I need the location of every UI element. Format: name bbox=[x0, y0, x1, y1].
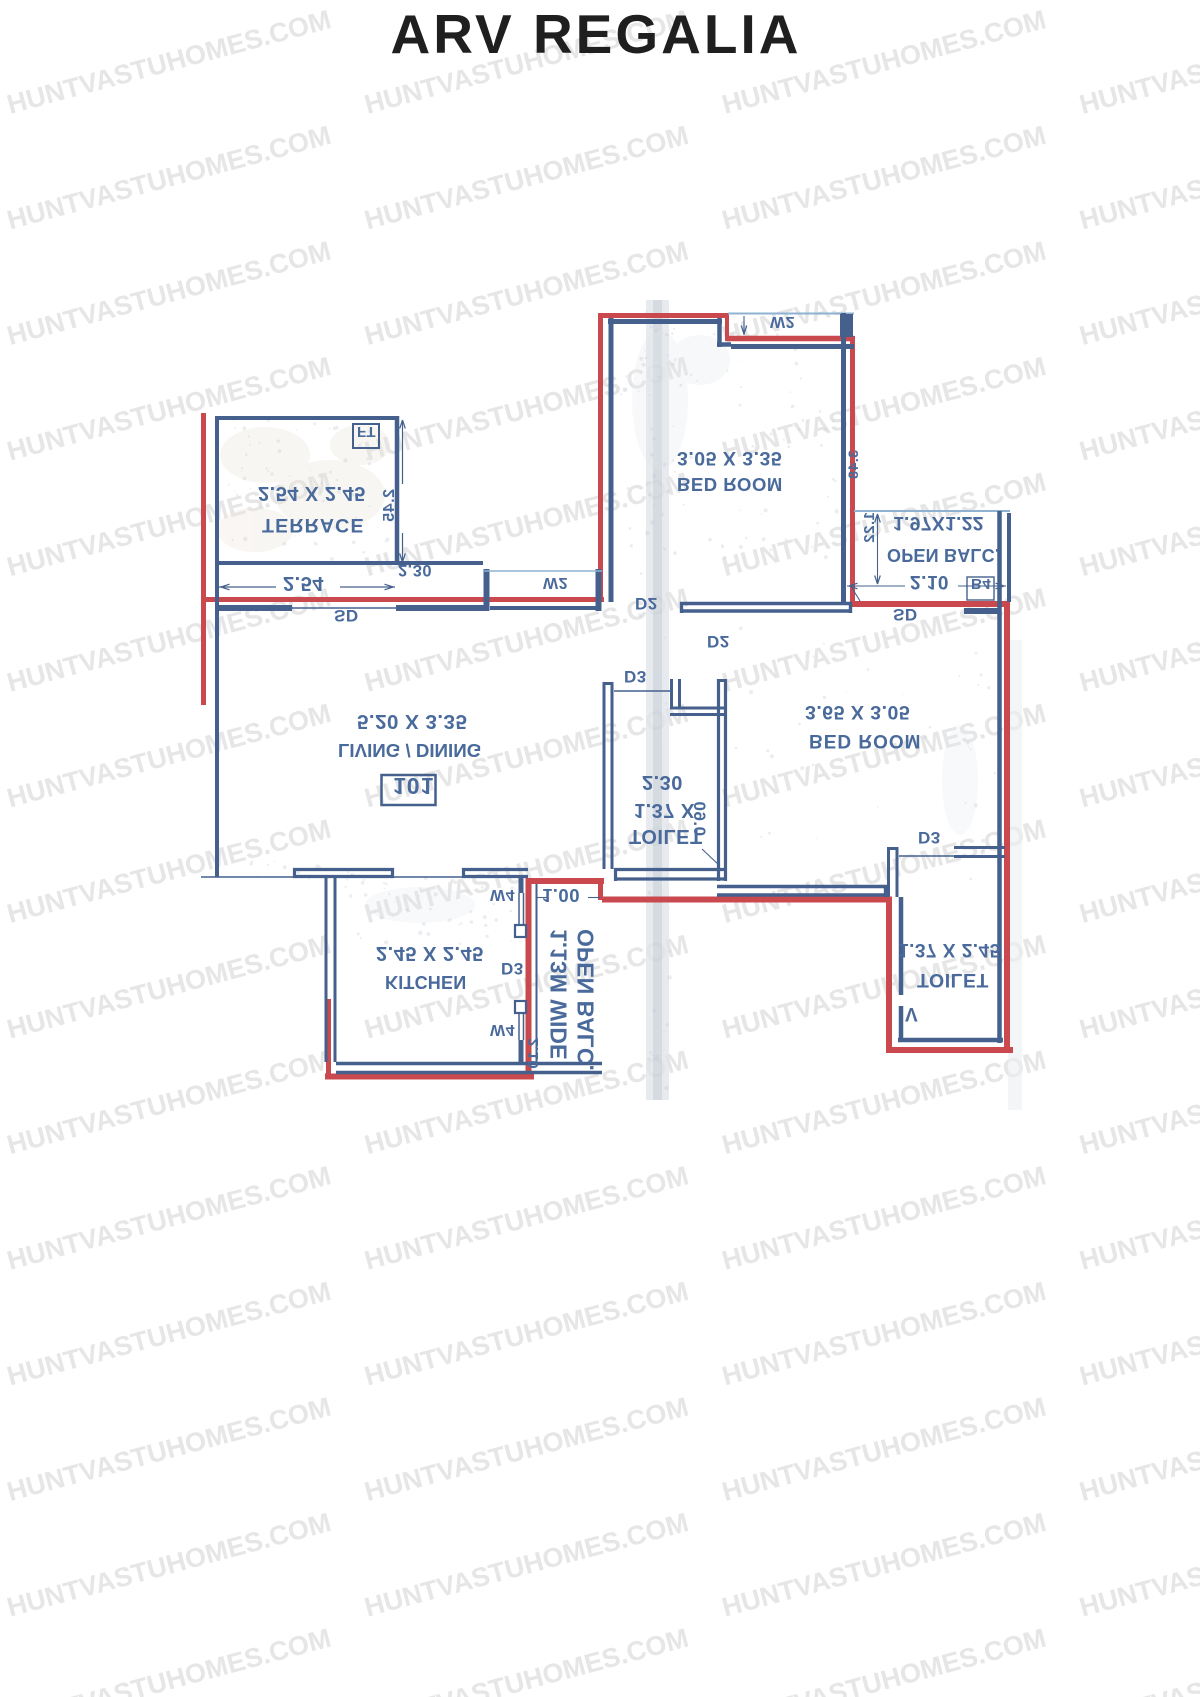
svg-text:2.10: 2.10 bbox=[525, 1038, 542, 1069]
svg-text:HUNTVASTUHOMES.COM: HUNTVASTUHOMES.COM bbox=[4, 1276, 334, 1391]
svg-text:V: V bbox=[905, 1003, 918, 1024]
svg-text:D2: D2 bbox=[707, 632, 730, 651]
svg-text:FT: FT bbox=[357, 423, 376, 440]
svg-text:HUNTVASTUHOMES.COM: HUNTVASTUHOMES.COM bbox=[1076, 814, 1200, 929]
svg-text:1.37 X 2.45: 1.37 X 2.45 bbox=[898, 939, 1001, 960]
svg-text:HUNTVASTUHOMES.COM: HUNTVASTUHOMES.COM bbox=[719, 1507, 1049, 1622]
svg-text:W2: W2 bbox=[770, 313, 795, 330]
svg-text:HUNTVASTUHOMES.COM: HUNTVASTUHOMES.COM bbox=[361, 1276, 691, 1391]
svg-text:1.37 X: 1.37 X bbox=[634, 799, 695, 821]
svg-text:D3: D3 bbox=[624, 667, 647, 686]
svg-text:HUNTVASTUHOMES.COM: HUNTVASTUHOMES.COM bbox=[361, 1623, 691, 1697]
svg-text:HUNTVASTUHOMES.COM: HUNTVASTUHOMES.COM bbox=[361, 1392, 691, 1507]
svg-text:HUNTVASTUHOMES.COM: HUNTVASTUHOMES.COM bbox=[1076, 1160, 1200, 1275]
svg-text:HUNTVASTUHOMES.COM: HUNTVASTUHOMES.COM bbox=[1076, 236, 1200, 351]
svg-text:HUNTVASTUHOMES.COM: HUNTVASTUHOMES.COM bbox=[719, 120, 1049, 235]
svg-text:HUNTVASTUHOMES.COM: HUNTVASTUHOMES.COM bbox=[4, 1507, 334, 1622]
svg-text:OPEN BALC.: OPEN BALC. bbox=[573, 929, 599, 1071]
svg-text:BED ROOM: BED ROOM bbox=[809, 730, 922, 751]
svg-text:BED ROOM: BED ROOM bbox=[677, 474, 783, 495]
svg-text:HUNTVASTUHOMES.COM: HUNTVASTUHOMES.COM bbox=[4, 236, 334, 351]
svg-text:HUNTVASTUHOMES.COM: HUNTVASTUHOMES.COM bbox=[1076, 1045, 1200, 1160]
svg-text:3.65 X 3.05: 3.65 X 3.05 bbox=[805, 701, 910, 723]
svg-text:HUNTVASTUHOMES.COM: HUNTVASTUHOMES.COM bbox=[1076, 929, 1200, 1044]
svg-text:W4: W4 bbox=[490, 1021, 515, 1038]
svg-text:HUNTVASTUHOMES.COM: HUNTVASTUHOMES.COM bbox=[1076, 698, 1200, 813]
svg-text:1.22: 1.22 bbox=[861, 512, 878, 543]
svg-text:HUNTVASTUHOMES.COM: HUNTVASTUHOMES.COM bbox=[4, 1623, 334, 1697]
svg-text:SD: SD bbox=[334, 606, 359, 625]
svg-text:HUNTVASTUHOMES.COM: HUNTVASTUHOMES.COM bbox=[4, 814, 334, 929]
svg-text:2.10: 2.10 bbox=[910, 571, 949, 592]
svg-text:1.13M WIDE: 1.13M WIDE bbox=[546, 929, 572, 1059]
svg-text:HUNTVASTUHOMES.COM: HUNTVASTUHOMES.COM bbox=[1076, 582, 1200, 697]
svg-text:D2: D2 bbox=[635, 594, 658, 613]
svg-text:HUNTVASTUHOMES.COM: HUNTVASTUHOMES.COM bbox=[361, 1160, 691, 1275]
svg-text:TOILET: TOILET bbox=[629, 825, 703, 847]
svg-text:W4: W4 bbox=[490, 886, 515, 903]
svg-text:HUNTVASTUHOMES.COM: HUNTVASTUHOMES.COM bbox=[4, 698, 334, 813]
svg-text:TOILET: TOILET bbox=[917, 969, 989, 991]
svg-text:HUNTVASTUHOMES.COM: HUNTVASTUHOMES.COM bbox=[719, 1045, 1049, 1160]
svg-text:HUNTVASTUHOMES.COM: HUNTVASTUHOMES.COM bbox=[719, 1623, 1049, 1697]
svg-text:HUNTVASTUHOMES.COM: HUNTVASTUHOMES.COM bbox=[4, 4, 334, 119]
svg-text:HUNTVASTUHOMES.COM: HUNTVASTUHOMES.COM bbox=[4, 929, 334, 1044]
svg-text:SD: SD bbox=[893, 605, 918, 624]
svg-text:HUNTVASTUHOMES.COM: HUNTVASTUHOMES.COM bbox=[1076, 120, 1200, 235]
svg-text:2.54 X 2.45: 2.54 X 2.45 bbox=[258, 482, 366, 504]
svg-text:ARV REGALIA: ARV REGALIA bbox=[391, 3, 802, 65]
svg-text:HUNTVASTUHOMES.COM: HUNTVASTUHOMES.COM bbox=[719, 1160, 1049, 1275]
svg-text:5.20 X 3.35: 5.20 X 3.35 bbox=[357, 710, 467, 733]
svg-text:2.30: 2.30 bbox=[642, 771, 683, 793]
svg-text:1.97X1.22: 1.97X1.22 bbox=[893, 512, 984, 534]
svg-text:D3: D3 bbox=[918, 828, 941, 847]
svg-text:TERRACE: TERRACE bbox=[262, 514, 365, 536]
svg-text:101: 101 bbox=[393, 773, 434, 799]
svg-text:OPEN BALC.: OPEN BALC. bbox=[887, 545, 1000, 565]
svg-text:2.54: 2.54 bbox=[283, 572, 324, 594]
svg-text:HUNTVASTUHOMES.COM: HUNTVASTUHOMES.COM bbox=[4, 120, 334, 235]
svg-text:KITCHEN: KITCHEN bbox=[385, 972, 466, 992]
svg-text:HUNTVASTUHOMES.COM: HUNTVASTUHOMES.COM bbox=[1076, 1507, 1200, 1622]
svg-text:HUNTVASTUHOMES.COM: HUNTVASTUHOMES.COM bbox=[1076, 351, 1200, 466]
svg-text:2.45: 2.45 bbox=[381, 489, 398, 522]
svg-text:W2: W2 bbox=[543, 574, 568, 591]
svg-text:HUNTVASTUHOMES.COM: HUNTVASTUHOMES.COM bbox=[1076, 4, 1200, 119]
svg-text:D3: D3 bbox=[501, 959, 524, 978]
svg-text:HUNTVASTUHOMES.COM: HUNTVASTUHOMES.COM bbox=[719, 1276, 1049, 1391]
svg-text:B4: B4 bbox=[971, 575, 991, 592]
svg-text:3.48: 3.48 bbox=[845, 450, 861, 479]
svg-text:HUNTVASTUHOMES.COM: HUNTVASTUHOMES.COM bbox=[1076, 1623, 1200, 1697]
svg-text:HUNTVASTUHOMES.COM: HUNTVASTUHOMES.COM bbox=[1076, 467, 1200, 582]
svg-text:HUNTVASTUHOMES.COM: HUNTVASTUHOMES.COM bbox=[4, 1045, 334, 1160]
svg-text:HUNTVASTUHOMES.COM: HUNTVASTUHOMES.COM bbox=[361, 1507, 691, 1622]
svg-text:HUNTVASTUHOMES.COM: HUNTVASTUHOMES.COM bbox=[361, 120, 691, 235]
svg-text:3.05 X 3.35: 3.05 X 3.35 bbox=[677, 447, 782, 469]
svg-text:HUNTVASTUHOMES.COM: HUNTVASTUHOMES.COM bbox=[4, 1392, 334, 1507]
svg-text:HUNTVASTUHOMES.COM: HUNTVASTUHOMES.COM bbox=[361, 236, 691, 351]
svg-text:HUNTVASTUHOMES.COM: HUNTVASTUHOMES.COM bbox=[1076, 1276, 1200, 1391]
svg-text:LIVING / DINING: LIVING / DINING bbox=[338, 740, 481, 761]
svg-text:HUNTVASTUHOMES.COM: HUNTVASTUHOMES.COM bbox=[4, 1160, 334, 1275]
svg-text:2.45 X 2.45: 2.45 X 2.45 bbox=[376, 942, 484, 964]
svg-text:HUNTVASTUHOMES.COM: HUNTVASTUHOMES.COM bbox=[719, 1392, 1049, 1507]
svg-text:HUNTVASTUHOMES.COM: HUNTVASTUHOMES.COM bbox=[1076, 1392, 1200, 1507]
svg-text:HUNTVASTUHOMES.COM: HUNTVASTUHOMES.COM bbox=[719, 236, 1049, 351]
svg-text:2.30: 2.30 bbox=[398, 561, 432, 579]
svg-text:1.00: 1.00 bbox=[542, 885, 580, 906]
